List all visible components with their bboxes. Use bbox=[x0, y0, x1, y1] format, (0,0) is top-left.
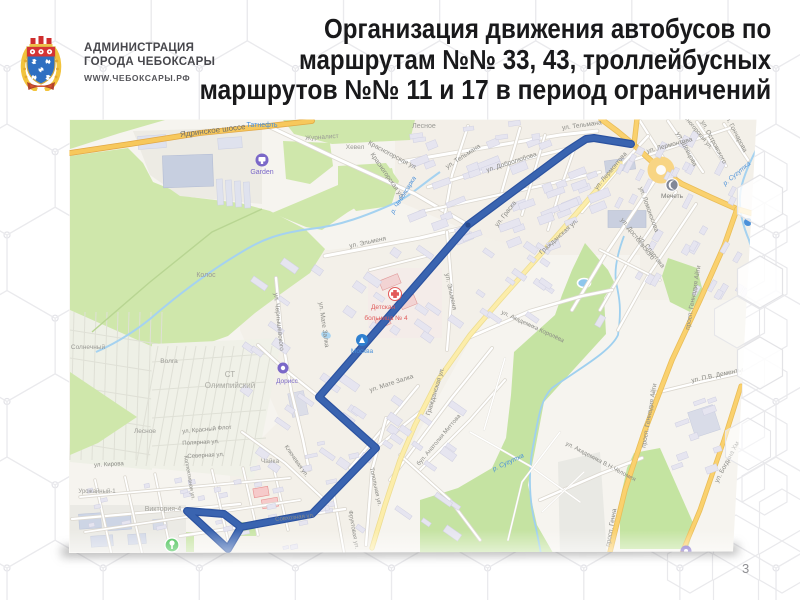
svg-text:больница № 4: больница № 4 bbox=[364, 314, 408, 322]
svg-text:Волга: Волга bbox=[160, 358, 178, 365]
svg-text:Мечеть: Мечеть bbox=[661, 193, 684, 200]
svg-text:Garden: Garden bbox=[250, 169, 273, 176]
svg-text:Лесное: Лесное bbox=[134, 428, 156, 435]
svg-text:СТ: СТ bbox=[225, 370, 236, 379]
svg-text:Солнечный: Солнечный bbox=[71, 343, 106, 351]
svg-text:Дорисс: Дорисс bbox=[276, 378, 299, 385]
svg-text:Татнефть: Татнефть bbox=[246, 122, 277, 129]
svg-text:Детская: Детская bbox=[371, 304, 396, 311]
svg-text:Виктория-4: Виктория-4 bbox=[145, 506, 182, 513]
svg-text:Хевел: Хевел bbox=[346, 144, 365, 151]
svg-text:Колос: Колос bbox=[196, 272, 216, 279]
svg-text:Чайка: Чайка bbox=[261, 457, 280, 465]
svg-text:Урожайный-1: Урожайный-1 bbox=[78, 488, 116, 495]
svg-text:Лесное: Лесное bbox=[412, 123, 436, 130]
svg-text:Москва: Москва bbox=[351, 348, 374, 355]
svg-text:Олимпийский: Олимпийский bbox=[205, 381, 255, 390]
